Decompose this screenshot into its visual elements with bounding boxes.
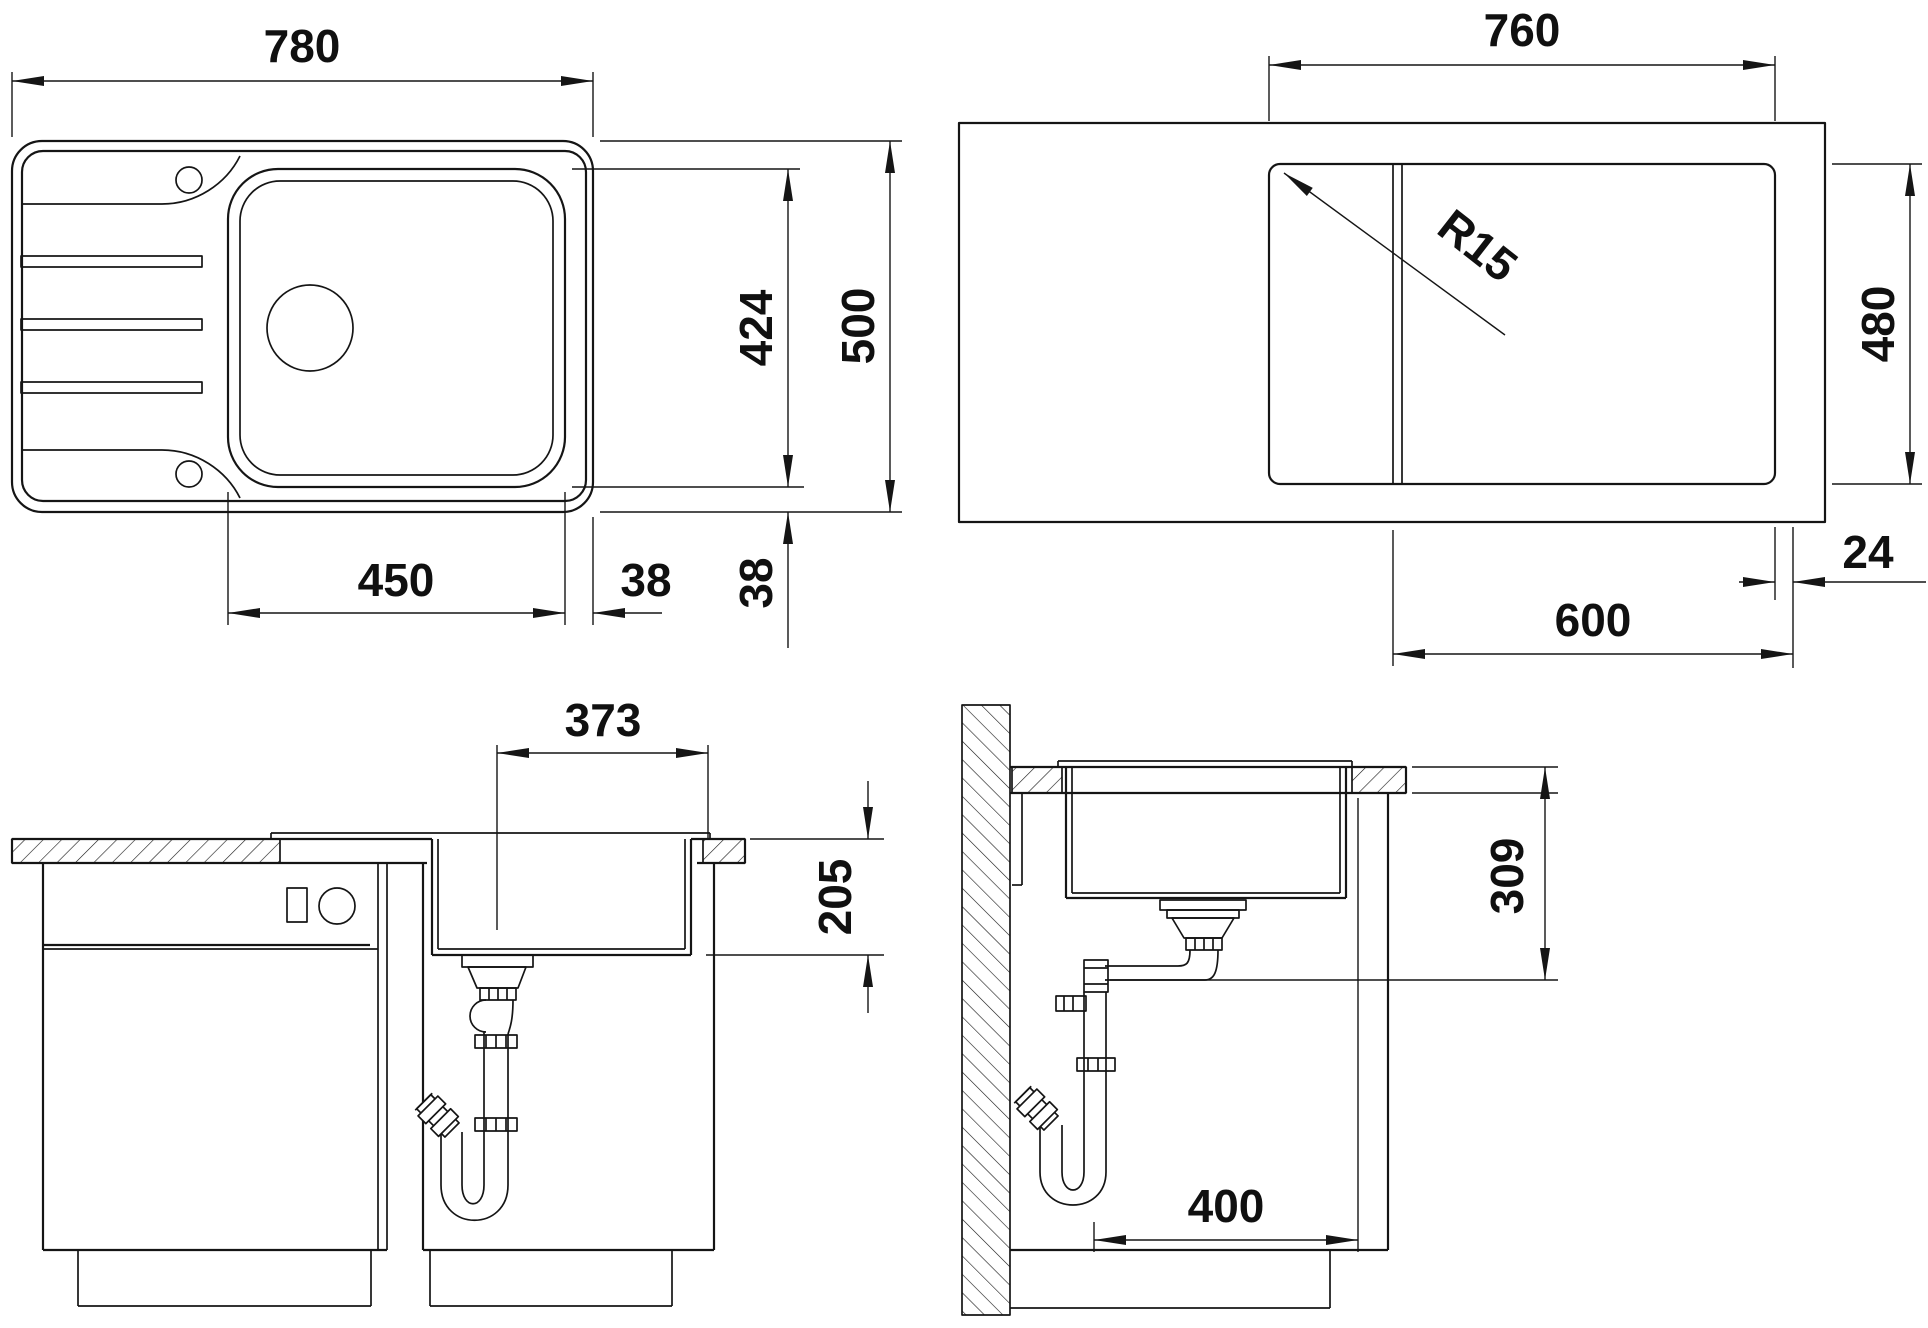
countertop-outline (959, 123, 1825, 522)
callout-corner-radius-label: R15 (1429, 199, 1528, 292)
callout-corner-radius: R15 (1284, 173, 1527, 335)
dim-min-cabinet-depth-label: 400 (1188, 1180, 1265, 1232)
dim-front-overhang-label: 24 (1842, 526, 1894, 578)
dim-cabinet-width: 600 (1393, 530, 1793, 666)
plan-view-sink: 780 424 500 450 38 (12, 20, 902, 648)
dim-cutout-depth-label: 480 (1852, 286, 1904, 363)
dim-cutout-width: 760 (1269, 4, 1775, 121)
dim-cabinet-width-label: 600 (1555, 594, 1632, 646)
side-trap-connector (1013, 1085, 1061, 1133)
dim-bowl-depth-label: 205 (809, 859, 861, 936)
dim-bowl-front-to-back-label: 424 (730, 289, 782, 366)
plan-view-cutout: 760 R15 480 24 600 (959, 4, 1926, 668)
drainboard-edge-top (21, 156, 240, 204)
bowl-section-front (432, 839, 691, 955)
drainboard-edge-bottom (21, 450, 240, 498)
front-section-view: 373 205 (12, 694, 884, 1306)
bowl-outer-edge (228, 169, 565, 487)
dim-bowl-front-to-back: 424 (572, 169, 804, 487)
sink-outer-edge (12, 141, 593, 512)
control-symbol-rect (287, 888, 307, 922)
dim-front-overhang: 24 (1739, 526, 1926, 668)
drain-trap-front (414, 955, 533, 1220)
dim-overall-width-label: 780 (264, 20, 341, 72)
dim-edge-gap-right-label: 38 (620, 554, 671, 606)
side-strainer-nut (1186, 938, 1222, 950)
tap-hole-top (176, 167, 202, 193)
tap-hole-bottom (176, 461, 202, 487)
bowl-section-side (1066, 767, 1346, 898)
dim-edge-gap-right: 38 (593, 517, 672, 625)
dim-min-cabinet-depth: 400 (1094, 798, 1358, 1252)
side-elbow-nut (1084, 960, 1108, 992)
side-counter-hatch-right (1352, 767, 1406, 793)
side-branch-nut (1056, 996, 1086, 1011)
dim-drain-to-edge: 373 (497, 694, 708, 930)
cutout-outline (1269, 164, 1775, 484)
bowl-inner-edge (240, 181, 553, 475)
dim-installation-depth-label: 309 (1481, 838, 1533, 915)
cabinet-right (423, 863, 714, 1306)
groove-3 (21, 382, 202, 393)
groove-2 (21, 319, 202, 330)
dim-overall-depth-label: 500 (832, 288, 884, 365)
drain-trap-side (1013, 900, 1246, 1205)
drain-hole (267, 285, 353, 371)
wall-section (962, 705, 1010, 1315)
side-counter-hatch-left (1012, 767, 1062, 793)
side-section-view: 309 400 (962, 705, 1558, 1315)
trap-side-connector (414, 1092, 462, 1140)
dim-drain-to-edge-label: 373 (565, 694, 642, 746)
dim-bowl-depth: 205 (706, 781, 884, 1013)
pipe-nut-2 (475, 1118, 517, 1131)
dim-edge-gap-bottom: 38 (730, 512, 788, 648)
pipe-nut-1 (475, 1035, 517, 1048)
technical-drawing-page: 780 424 500 450 38 (0, 0, 1928, 1328)
dim-installation-depth: 309 (1110, 767, 1558, 980)
sink-dimension-drawing: 780 424 500 450 38 (0, 0, 1928, 1328)
cabinet-left (43, 863, 387, 1306)
counter-hatch-left (12, 839, 280, 863)
control-symbol-circle (319, 888, 355, 924)
groove-1 (21, 256, 202, 267)
counter-hatch-right (703, 839, 745, 863)
dim-bowl-width-label: 450 (358, 554, 435, 606)
dim-cutout-depth: 480 (1832, 164, 1922, 484)
dim-edge-gap-bottom-label: 38 (730, 557, 782, 608)
dim-overall-width: 780 (12, 20, 593, 137)
side-pipe-nut (1077, 1058, 1115, 1071)
dim-cutout-width-label: 760 (1484, 4, 1561, 56)
